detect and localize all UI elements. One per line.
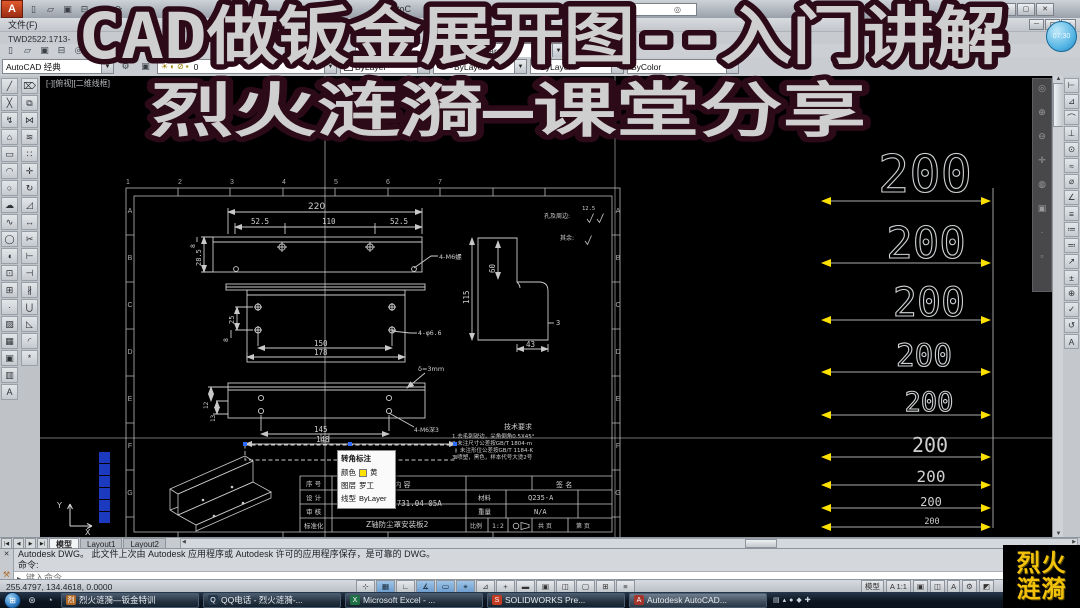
svg-text:未注形位公差按GB/T 1184-K: 未注形位公差按GB/T 1184-K xyxy=(460,446,533,454)
quick-launch-browser-icon[interactable]: ◔ xyxy=(43,595,57,605)
layer-color-icon[interactable]: ▪ xyxy=(186,62,189,71)
svg-text:N/A: N/A xyxy=(534,508,547,516)
join-icon[interactable]: ⋃ xyxy=(21,299,38,315)
svg-text:200: 200 xyxy=(896,338,952,374)
navigation-bar: ◎⊕⊖✛◍▣∙▫ xyxy=(1032,78,1052,292)
help-icon[interactable]: ? xyxy=(223,44,240,57)
svg-text:200: 200 xyxy=(905,387,954,418)
revcloud-icon[interactable]: ☁ xyxy=(1,197,18,213)
construction-line-icon[interactable]: ╳ xyxy=(1,95,18,111)
excel-icon: X xyxy=(350,595,360,605)
linear-dim-icon[interactable]: ⊢ xyxy=(1064,78,1079,93)
linetype-combo[interactable]: ——ByLayer ▼ xyxy=(433,59,527,74)
tray-qq-icon[interactable]: ◆ xyxy=(796,596,801,604)
svg-text:重量: 重量 xyxy=(478,508,492,516)
freeze-icon[interactable]: ◐ xyxy=(170,62,175,71)
view-flat-pattern xyxy=(208,373,456,460)
svg-text:150: 150 xyxy=(314,339,328,348)
aligned-dim-icon[interactable]: ⊿ xyxy=(1064,94,1079,109)
ellipse-icon[interactable]: ◯ xyxy=(1,231,18,247)
scale-icon[interactable]: ◿ xyxy=(21,197,38,213)
svg-text:200: 200 xyxy=(920,495,942,509)
leader-phi66: 4-φ6.6 xyxy=(418,329,442,337)
doc-minimize-button[interactable]: ─ xyxy=(1029,19,1044,30)
svg-text:序 号: 序 号 xyxy=(306,479,322,488)
text-style-combo[interactable]: Standard▼ xyxy=(355,43,457,58)
left-toolbars: ╱╳↯⌂▭◠○☁∿◯◖⊡⊞∙▨▦▣▥A ⌦⧉⋈≋∷✛↻◿↔✂⊢⊣∦⋃◺◜* xyxy=(0,76,40,537)
open-file-icon[interactable]: ▱ xyxy=(42,3,59,16)
autocad-icon: A xyxy=(634,595,644,605)
dim-220: 220 xyxy=(308,202,325,212)
ordinate-icon[interactable]: ⊥ xyxy=(1064,126,1079,141)
dimension-toolbar: ⊢⊿⌒⊥⊙≈⌀∠≡≔≕↗±⊕✓↺A xyxy=(1063,76,1080,537)
chevron-down-icon[interactable]: ▼ xyxy=(417,60,429,73)
baseline-icon[interactable]: ≔ xyxy=(1064,222,1079,237)
workspace-combo[interactable]: AutoCAD 经典▼ xyxy=(2,59,114,74)
dim-update-icon[interactable]: ↺ xyxy=(1064,318,1079,333)
autocad-logo-icon[interactable]: A xyxy=(1,0,23,18)
svg-text:12.5: 12.5 xyxy=(582,206,595,212)
svg-text:审 核: 审 核 xyxy=(306,507,322,516)
svg-text:签 名: 签 名 xyxy=(556,480,572,489)
svg-text:25: 25 xyxy=(228,316,236,324)
center-mark-icon[interactable]: ⊕ xyxy=(1064,286,1079,301)
roughness-symbol-icon xyxy=(585,214,604,245)
menu-file[interactable]: 文件(F) xyxy=(0,18,46,31)
tooltip-title: 转角标注 xyxy=(341,453,392,464)
svg-text:52.5: 52.5 xyxy=(251,217,269,226)
svg-text:其余:: 其余: xyxy=(560,234,574,242)
taskbar-button-excel[interactable]: X Microsoft Excel - ... xyxy=(345,593,483,608)
help-search: ◎ xyxy=(583,3,697,16)
dim-style-combo[interactable]: Standard▼ xyxy=(463,43,565,58)
command-area: ✕ ⚒ Autodesk DWG。 此文件上次由 Autodesk 应用程序或 … xyxy=(0,548,1080,580)
navbar-dot-icon[interactable]: ∙ xyxy=(1041,227,1044,251)
lineweight-icon: ━ xyxy=(534,61,538,72)
paste-icon[interactable]: ▤ xyxy=(121,44,138,57)
svg-text:标准化: 标准化 xyxy=(304,521,324,530)
tray-green-icon[interactable]: ● xyxy=(789,597,793,604)
svg-text:200: 200 xyxy=(912,433,948,457)
svg-text:3: 3 xyxy=(556,319,560,327)
title-bar: A ▯▱▣⊟↶↷▾ AutoC ◎ ─ ▢ ✕ xyxy=(0,0,1080,18)
linetype-icon: —— xyxy=(437,62,452,72)
explode-icon[interactable]: * xyxy=(21,350,38,366)
lineweight-combo[interactable]: ━ByLayer ▼ xyxy=(530,59,624,74)
plot-icon[interactable]: ⊟ xyxy=(76,3,93,16)
part-name: Z轴防尘罩安装板2 xyxy=(366,519,429,529)
properties-toolbar: AutoCAD 经典▼ ⚙ ▣ ☀◐⊘▪ 0 ▼ ByLayer ▼ ——ByL… xyxy=(0,57,1080,77)
system-tray: ▤▴●◆✚ xyxy=(773,596,811,604)
radius-icon[interactable]: ⊙ xyxy=(1064,142,1079,157)
svg-text:技术要求: 技术要求 xyxy=(504,422,532,431)
color-swatch-icon xyxy=(344,62,353,71)
yellow-swatch-icon xyxy=(359,469,367,477)
zone-number: 3 xyxy=(206,179,258,186)
zone-letter: D xyxy=(125,329,135,376)
color-combo[interactable]: ByLayer ▼ xyxy=(340,59,430,74)
ucs-icon xyxy=(68,504,93,529)
jogged-icon[interactable]: ≈ xyxy=(1064,158,1079,173)
rectangle-icon[interactable]: ▭ xyxy=(1,146,18,162)
scroll-up-icon: ▲ xyxy=(1056,76,1062,82)
navbar-zoom-out-icon[interactable]: ⊖ xyxy=(1038,131,1046,155)
svg-text:3.喷塑，黑色，样本代号大烫2号: 3.喷塑，黑色，样本代号大烫2号 xyxy=(452,453,533,461)
zone-letter: G xyxy=(125,470,135,517)
zone-letter: B xyxy=(125,235,135,282)
chevron-down-icon[interactable]: ▼ xyxy=(324,60,336,73)
trim-icon[interactable]: ✂ xyxy=(21,231,38,247)
frame-zone-numbers: 1234567 xyxy=(102,179,466,186)
hatch-icon[interactable]: ▨ xyxy=(1,316,18,332)
redo-icon[interactable]: ↷ xyxy=(155,44,172,57)
break-icon[interactable]: ∦ xyxy=(21,282,38,298)
svg-text:1.去毛刺锐边，尖角倒角0.5X45°: 1.去毛刺锐边，尖角倒角0.5X45° xyxy=(452,432,535,440)
circle-icon[interactable]: ○ xyxy=(1,180,18,196)
navbar-compass-icon[interactable]: ◎ xyxy=(1038,83,1046,107)
svg-text:8: 8 xyxy=(222,338,230,342)
command-history: Autodesk DWG。 此文件上次由 Autodesk 应用程序或 Auto… xyxy=(14,549,1080,560)
region-icon[interactable]: ▣ xyxy=(1,350,18,366)
spline-icon[interactable]: ∿ xyxy=(1,214,18,230)
workspace-settings-icon[interactable]: ⚙ xyxy=(117,60,134,73)
quick-launch-icon[interactable]: ⊛ xyxy=(25,595,39,606)
blue-watermark-marks xyxy=(99,452,110,524)
start-button[interactable]: ⊞ xyxy=(4,592,21,608)
solidworks-icon: S xyxy=(492,595,502,605)
svg-text:第 页: 第 页 xyxy=(576,522,590,530)
chevron-down-icon[interactable]: ▼ xyxy=(444,44,456,57)
surface-finish-notes: 孔及周边: 12.5 其余: xyxy=(544,206,604,245)
new-file-icon[interactable]: ▯ xyxy=(2,44,19,57)
zone-letter: G xyxy=(613,470,623,517)
offset-icon[interactable]: ≋ xyxy=(21,129,38,145)
pan-icon[interactable]: ✛ xyxy=(172,44,189,57)
plot-icon[interactable]: ⊟ xyxy=(53,44,70,57)
window-title: AutoC xyxy=(386,4,411,14)
grip-point[interactable] xyxy=(453,442,457,446)
erase-icon[interactable]: ⌦ xyxy=(21,78,38,94)
svg-text:13: 13 xyxy=(210,414,217,422)
ucs-y-label: Y xyxy=(56,501,62,510)
svg-text:设 计: 设 计 xyxy=(306,493,322,502)
zone-letter: F xyxy=(125,423,135,470)
polygon-icon[interactable]: ⌂ xyxy=(1,129,18,145)
viewport-controls[interactable]: [-][俯视][二维线框] xyxy=(46,78,110,89)
arc-length-icon[interactable]: ⌒ xyxy=(1064,110,1079,125)
polyline-icon[interactable]: ↯ xyxy=(1,112,18,128)
arc-icon[interactable]: ◠ xyxy=(1,163,18,179)
leader-m6: 4-M6螺 xyxy=(439,252,462,261)
workspace-save-icon[interactable]: ▣ xyxy=(137,60,154,73)
svg-text:8: 8 xyxy=(189,244,197,248)
tolerance-icon[interactable]: ± xyxy=(1064,270,1079,285)
standard-toolbar: ▯▱▣⊟◎✂⧉▤↶↷✛⊕▦? Standard▼ Standard▼ xyxy=(0,44,1080,57)
svg-text:178: 178 xyxy=(314,348,328,357)
drawing-canvas[interactable]: 220 52.5 110 52.5 28.5 8 4-M6螺 xyxy=(40,76,1052,537)
scroll-thumb xyxy=(745,539,777,548)
quick-dim-icon[interactable]: ≡ xyxy=(1064,206,1079,221)
menu-bar: 文件(F) ─ ⊡ ✕ xyxy=(0,18,1080,31)
document-name[interactable]: TWD2522.1713- xyxy=(0,34,70,44)
make-block-icon[interactable]: ⊞ xyxy=(1,282,18,298)
zone-letter: A xyxy=(613,188,623,235)
zone-number: 6 xyxy=(362,179,414,186)
navbar-orbit-icon[interactable]: ◍ xyxy=(1038,179,1046,203)
view-side-profile xyxy=(472,238,554,352)
undo-icon[interactable]: ↶ xyxy=(93,3,110,16)
lock-icon[interactable]: ⊘ xyxy=(177,62,184,71)
chevron-down-icon[interactable]: ▼ xyxy=(611,60,623,73)
taskbar-button-lielian[interactable]: 烈 烈火涟漪—钣金特训 xyxy=(61,593,199,608)
stretch-icon[interactable]: ↔ xyxy=(21,214,38,230)
channel-logo: 烈火 涟漪 xyxy=(1003,545,1080,608)
dimension-200-stack: 200 200 200 200 200 200 200 200 200 xyxy=(822,145,993,528)
move-icon[interactable]: ✛ xyxy=(21,163,38,179)
leader-m6-depth: 4-M6深3 xyxy=(414,426,439,434)
draw-toolbar: ╱╳↯⌂▭◠○☁∿◯◖⊡⊞∙▨▦▣▥A xyxy=(0,78,19,537)
cad-drawing: 220 52.5 110 52.5 28.5 8 4-M6螺 xyxy=(40,76,1052,537)
svg-text:200: 200 xyxy=(917,467,946,486)
svg-text:孔及周边:: 孔及周边: xyxy=(544,212,570,220)
current-layer: 0 xyxy=(194,62,199,72)
zone-letter: C xyxy=(613,282,623,329)
chamfer-icon[interactable]: ◺ xyxy=(21,316,38,332)
svg-text:110: 110 xyxy=(322,217,336,226)
grip-point[interactable] xyxy=(243,442,247,446)
recorder-timer-bubble: 07:30 xyxy=(1046,21,1077,52)
svg-text:比例: 比例 xyxy=(470,522,482,530)
copy-icon[interactable]: ⧉ xyxy=(104,44,121,57)
taskbar-button-autocad[interactable]: A Autodesk AutoCAD... xyxy=(629,593,767,608)
search-icon[interactable]: ◎ xyxy=(672,5,683,14)
leader-thickness: δ=3mm xyxy=(418,365,444,373)
zoom-icon[interactable]: ⊕ xyxy=(189,44,206,57)
plotstyle-combo[interactable]: ByColor ▼ xyxy=(627,59,739,74)
view-isometric-bracket xyxy=(170,456,271,531)
qq-icon: Q xyxy=(208,595,218,605)
properties-icon[interactable]: ▦ xyxy=(206,44,223,57)
zone-number: 1 xyxy=(102,179,154,186)
plot-preview-icon[interactable]: ◎ xyxy=(70,44,87,57)
svg-text:Q235-A: Q235-A xyxy=(528,494,554,502)
zone-letter: D xyxy=(613,329,623,376)
mtext-icon[interactable]: A xyxy=(1,384,18,400)
svg-text:43: 43 xyxy=(526,340,535,349)
zone-letter: E xyxy=(125,376,135,423)
cut-icon[interactable]: ✂ xyxy=(87,44,104,57)
svg-text:115: 115 xyxy=(462,290,471,304)
bulb-icon[interactable]: ☀ xyxy=(161,62,168,71)
coordinates-readout: 255.4797, 134.4618, 0.0000 xyxy=(0,582,156,592)
chevron-down-icon[interactable]: ▼ xyxy=(514,60,526,73)
fillet-icon[interactable]: ◜ xyxy=(21,333,38,349)
zone-number: 4 xyxy=(258,179,310,186)
navbar-steering-icon[interactable]: ▣ xyxy=(1038,203,1047,227)
zone-letter: A xyxy=(125,188,135,235)
zone-number: 7 xyxy=(414,179,466,186)
point-icon[interactable]: ∙ xyxy=(1,299,18,315)
screen: A ▯▱▣⊟↶↷▾ AutoC ◎ ─ ▢ ✕ 文件(F) ─ ⊡ ✕ TWD2… xyxy=(0,0,1080,608)
zone-letter: B xyxy=(613,235,623,282)
svg-text:200: 200 xyxy=(924,517,939,527)
svg-text:12: 12 xyxy=(203,401,210,409)
modify-toolbar: ⌦⧉⋈≋∷✛↻◿↔✂⊢⊣∦⋃◺◜* xyxy=(20,78,39,537)
break-at-point-icon[interactable]: ⊣ xyxy=(21,265,38,281)
chevron-down-icon[interactable]: ▼ xyxy=(726,60,738,73)
svg-text:共 页: 共 页 xyxy=(538,522,552,530)
customize-icon[interactable]: ⚒ xyxy=(3,570,10,579)
save-icon[interactable]: ▣ xyxy=(36,44,53,57)
ellipse-arc-icon[interactable]: ◖ xyxy=(1,248,18,264)
close-button[interactable]: ✕ xyxy=(1036,3,1054,16)
open-file-icon[interactable]: ▱ xyxy=(19,44,36,57)
chevron-down-icon[interactable]: ▼ xyxy=(552,44,564,57)
extend-icon[interactable]: ⊢ xyxy=(21,248,38,264)
svg-text:200: 200 xyxy=(886,218,965,269)
minimize-button[interactable]: ─ xyxy=(998,3,1016,16)
redo-icon[interactable]: ↷ xyxy=(110,3,127,16)
tray-up-icon[interactable]: ▴ xyxy=(783,596,787,604)
zone-letter: F xyxy=(613,423,623,470)
zone-number: 5 xyxy=(310,179,362,186)
chevron-down-icon[interactable]: ▼ xyxy=(101,60,113,73)
gradient-icon[interactable]: ▦ xyxy=(1,333,18,349)
svg-text:52.5: 52.5 xyxy=(390,217,408,226)
command-close-icon[interactable]: ✕ xyxy=(4,550,10,558)
scroll-left-icon: ◀ xyxy=(182,539,186,545)
table-icon[interactable]: ▥ xyxy=(1,367,18,383)
taskbar-button-qq[interactable]: Q QQ电话 - 烈火涟漪-... xyxy=(203,593,341,608)
new-file-icon[interactable]: ▯ xyxy=(25,3,42,16)
frame-zone-letters-left: ABCDEFG xyxy=(125,188,135,517)
tray-grid-icon[interactable]: ▤ xyxy=(773,596,780,604)
quick-access-toolbar: ▯▱▣⊟↶↷▾ xyxy=(25,3,144,16)
tray-shield-icon[interactable]: ✚ xyxy=(805,596,811,604)
svg-text:28.5: 28.5 xyxy=(195,249,203,266)
maximize-button[interactable]: ▢ xyxy=(1017,3,1035,16)
search-input[interactable] xyxy=(584,5,672,14)
mirror-icon[interactable]: ⋈ xyxy=(21,112,38,128)
dim-text-icon[interactable]: A xyxy=(1064,334,1079,349)
navbar-pan-icon[interactable]: ✛ xyxy=(1038,155,1046,179)
ucs-x-label: X xyxy=(85,528,91,537)
continue-icon[interactable]: ≕ xyxy=(1064,238,1079,253)
command-prompt: 命令: xyxy=(14,560,1080,571)
angular-icon[interactable]: ∠ xyxy=(1064,190,1079,205)
inspection-icon[interactable]: ✓ xyxy=(1064,302,1079,317)
rotate-icon[interactable]: ↻ xyxy=(21,180,38,196)
svg-text:200: 200 xyxy=(878,145,972,205)
frame-zone-letters-right: ABCDEFG xyxy=(613,188,623,517)
grip-point[interactable] xyxy=(348,442,352,446)
layer-combo[interactable]: ☀◐⊘▪ 0 ▼ xyxy=(157,59,337,74)
zone-number: 2 xyxy=(154,179,206,186)
dropdown-icon[interactable]: ▾ xyxy=(127,3,144,16)
save-icon[interactable]: ▣ xyxy=(59,3,76,16)
command-strip: ✕ ⚒ xyxy=(0,549,14,580)
undo-icon[interactable]: ↶ xyxy=(138,44,155,57)
navbar-more-icon[interactable]: ▫ xyxy=(1040,251,1043,275)
svg-text:148: 148 xyxy=(316,435,330,444)
taskbar: ⊞ ⊛ ◔ 烈 烈火涟漪—钣金特训 Q QQ电话 - 烈火涟漪-... X Mi… xyxy=(0,592,1080,608)
svg-text:200: 200 xyxy=(893,280,965,326)
technical-notes: 技术要求 1.去毛刺锐边，尖角倒角0.5X45° 2.未注尺寸公差按GB/T 1… xyxy=(452,422,535,461)
svg-text:1:2: 1:2 xyxy=(492,522,504,530)
insert-block-icon[interactable]: ⊡ xyxy=(1,265,18,281)
svg-text:60: 60 xyxy=(488,263,497,273)
navbar-zoom-in-icon[interactable]: ⊕ xyxy=(1038,107,1046,131)
leader-icon[interactable]: ↗ xyxy=(1064,254,1079,269)
copy-icon[interactable]: ⧉ xyxy=(21,95,38,111)
rollover-tooltip: 转角标注 颜色黄 图层罗工 线型ByLayer xyxy=(337,450,396,509)
svg-text:材料: 材料 xyxy=(478,493,492,502)
browser-icon: 烈 xyxy=(66,595,76,605)
zone-letter: E xyxy=(613,376,623,423)
svg-text:145: 145 xyxy=(314,425,328,434)
svg-text:2.未注尺寸公差按GB/T 1804-m: 2.未注尺寸公差按GB/T 1804-m xyxy=(452,439,532,447)
line-icon[interactable]: ╱ xyxy=(1,78,18,94)
array-icon[interactable]: ∷ xyxy=(21,146,38,162)
taskbar-button-solidworks[interactable]: S SOLIDWORKS Pre... xyxy=(487,593,625,608)
diameter-icon[interactable]: ⌀ xyxy=(1064,174,1079,189)
zone-letter: C xyxy=(125,282,135,329)
